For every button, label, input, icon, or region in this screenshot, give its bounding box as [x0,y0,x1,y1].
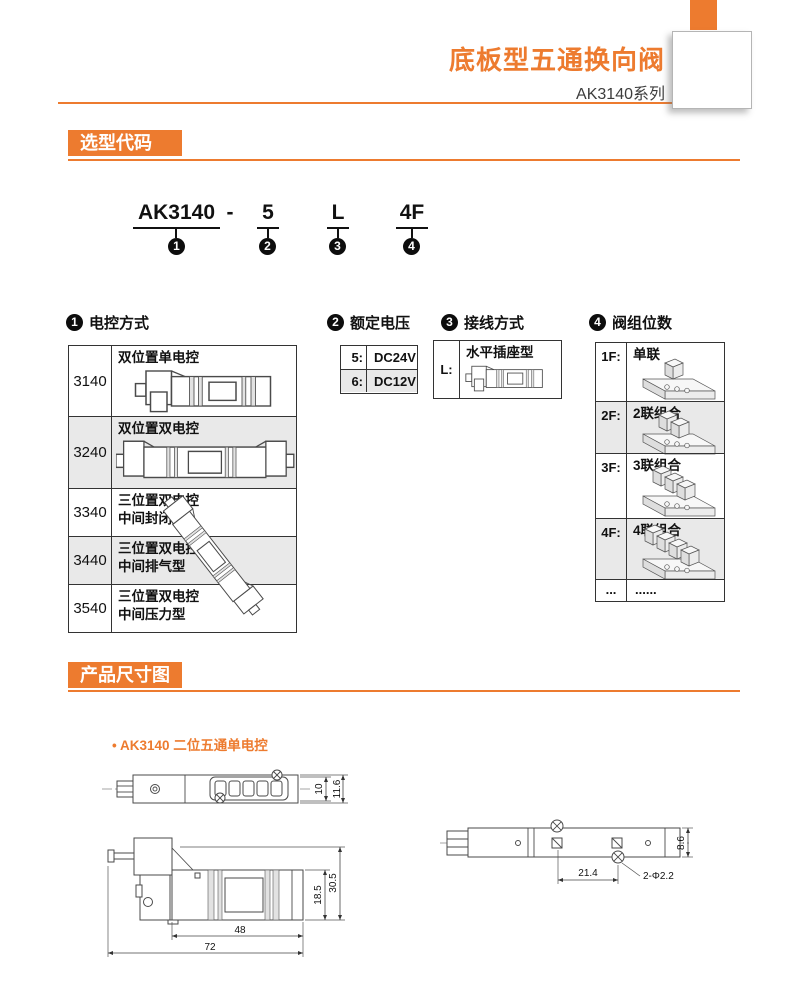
manifold-4f-drawing [631,523,725,579]
circle-number-3-icon: 3 [441,314,458,331]
dim-label-8-6: 8.6 [676,836,687,850]
voltage-table: 5: DC24V 6: DC12V [340,345,418,394]
table-cell-code: 3140 [69,346,111,416]
corner-tab [690,0,717,30]
table-cell-code: 3F: [596,453,626,518]
logo-placeholder-box [672,31,752,109]
section-rule [68,159,740,161]
code-tick-1 [175,229,177,238]
side-view-drawing: 8.6 21.4 2-Φ2.2 [440,816,705,908]
group-header-3: 3 接线方式 [441,312,524,333]
table-cell-code: 3540 [69,584,111,632]
group-header-1: 1 电控方式 [66,312,149,333]
table-cell-value: DC12V [366,369,417,392]
circle-number-3-icon: 3 [329,238,346,255]
table-cell-code: ... [596,579,626,601]
control-type-table: 3140 双位置单电控 3240 双位置双电控 3340 三位置双电控 中间封闭… [68,345,297,633]
bullet-dot-icon: • [112,738,117,753]
front-view-drawing: 18.5 30.5 48 72 [90,836,355,968]
series-subtitle: AK3140系列 [420,80,665,104]
dim-label-18-5: 18.5 [313,885,324,905]
valve-3140-drawing [134,364,286,415]
table-cell-code: 3440 [69,536,111,584]
table-row: 单联 [626,343,724,401]
circle-number-4-icon: 4 [403,238,420,255]
section-header-selection-code: 选型代码 [68,130,182,156]
dim-label-21-4: 21.4 [578,868,598,879]
caption-text: AK3140 二位五通单电控 [120,738,268,753]
table-row: 双位置双电控 [111,416,296,488]
dim-label-30-5: 30.5 [328,873,339,893]
manifold-1f-drawing [633,345,725,401]
code-tick-4 [411,229,413,238]
table-cell-code: 2F: [596,401,626,453]
table-cell-code: 4F: [596,518,626,579]
group-title-2: 额定电压 [350,312,410,333]
dim-label-48: 48 [234,925,246,936]
code-tick-2 [267,229,269,238]
dimension-figure-caption: • AK3140 二位五通单电控 [112,734,268,754]
table-cell-code: 5: [341,346,366,369]
station-count-table: 1F: 单联 2F: 2联组合 3F: 3联组合 4F: 4联组合 [595,342,725,602]
table-row: 双位置单电控 [111,346,296,416]
group-header-4: 4 阀组位数 [589,312,672,333]
dim-label-11-6: 11.6 [332,779,343,798]
dim-label-72: 72 [204,942,216,953]
circle-number-4-icon: 4 [589,314,606,331]
wiring-table: L: 水平插座型 [433,340,562,399]
valve-3pos-diagonal-drawing [169,488,299,632]
section-rule [68,690,740,692]
circle-number-2-icon: 2 [259,238,276,255]
table-row: 3联组合 [626,453,724,518]
circle-number-2-icon: 2 [327,314,344,331]
manifold-2f-drawing [633,402,725,456]
table-cell-code: 3240 [69,416,111,488]
group-title-1: 电控方式 [89,312,149,333]
datasheet-page: 底板型五通换向阀 AK3140系列 选型代码 AK3140 - 5 L 4F 1… [0,0,800,1000]
model-code-part-3: L [327,201,349,225]
dim-label-10: 10 [314,783,325,795]
page-title: 底板型五通换向阀 [300,40,665,77]
table-cell-code: 1F: [596,343,626,401]
top-view-drawing: 10 11.6 [100,762,352,828]
table-cell-code: L: [434,341,459,398]
model-code-part-2: 5 [257,201,279,225]
table-row: 水平插座型 [459,341,561,398]
table-cell-code: 6: [341,369,366,392]
table-cell-value: DC24V [366,346,417,369]
model-code-part-4: 4F [396,201,428,225]
table-row: 2联组合 [626,401,724,453]
circle-number-1-icon: 1 [66,314,83,331]
table-cell-code: 3340 [69,488,111,536]
model-code-part-1: AK3140 [133,201,220,225]
model-code-dash: - [224,201,236,225]
group-title-3: 接线方式 [464,312,524,333]
header-rule [58,102,740,104]
valve-3240-drawing [116,434,295,487]
group-header-2: 2 额定电压 [327,312,410,333]
circle-number-1-icon: 1 [168,238,185,255]
valve-horizontal-socket-drawing [465,362,551,394]
dim-label-2-phi-2-2: 2-Φ2.2 [643,871,674,882]
code-tick-3 [337,229,339,238]
table-row: 4联组合 [626,518,724,579]
group-title-4: 阀组位数 [612,312,672,333]
table-cell-value: ...... [626,579,724,601]
section-header-dimensions: 产品尺寸图 [68,662,182,688]
manifold-3f-drawing [633,460,725,518]
